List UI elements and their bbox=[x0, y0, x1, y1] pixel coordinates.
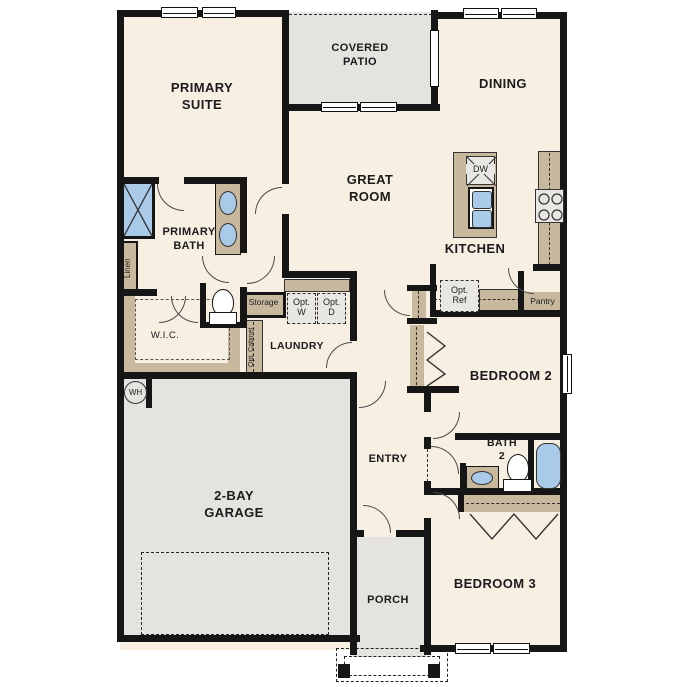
bath2-label: BATH 2 bbox=[478, 437, 526, 464]
wall-segment bbox=[117, 635, 360, 642]
wall-segment bbox=[407, 318, 437, 324]
bedroom3-closet-dash bbox=[466, 503, 560, 504]
kitchen-label: KITCHEN bbox=[430, 241, 520, 258]
porch-label: PORCH bbox=[358, 593, 418, 607]
window bbox=[562, 354, 572, 394]
garage-door-outline bbox=[141, 552, 329, 635]
bathtub-fixture bbox=[536, 443, 561, 489]
primary-bath-label: PRIMARY BATH bbox=[145, 225, 233, 253]
wic-label: W.I.C. bbox=[140, 330, 190, 342]
porch-step-corner bbox=[428, 664, 440, 678]
laundry-label: LAUNDRY bbox=[264, 340, 330, 353]
bedroom3-label: BEDROOM 3 bbox=[445, 576, 545, 593]
wall-segment bbox=[533, 264, 567, 271]
water-heater-label: WH bbox=[124, 388, 147, 397]
opt-dryer-label: Opt. D bbox=[317, 297, 346, 318]
wall-segment bbox=[460, 463, 466, 493]
wall-segment bbox=[117, 10, 124, 642]
coat-closet-dash bbox=[418, 291, 419, 318]
wall-segment bbox=[350, 530, 364, 537]
opt-ref-label: Opt. Ref bbox=[440, 285, 479, 306]
window bbox=[493, 643, 530, 654]
wall-segment bbox=[431, 10, 438, 32]
primary-suite-label: PRIMARY SUITE bbox=[152, 80, 252, 113]
porch-steps-inner bbox=[344, 656, 440, 676]
floor-plan: DW WH PRIMARY SUITE COVE bbox=[0, 0, 687, 687]
covered-patio-label: COVERED PATIO bbox=[312, 41, 408, 69]
sink-fixture bbox=[471, 471, 493, 485]
wall-segment bbox=[424, 392, 431, 412]
wall-segment bbox=[282, 271, 357, 278]
bedroom2-closet-shelf bbox=[410, 325, 424, 387]
pantry-label: Pantry bbox=[524, 297, 561, 307]
laundry-counter bbox=[284, 279, 350, 292]
wall-segment bbox=[458, 495, 464, 512]
storage-label: Storage bbox=[243, 298, 284, 308]
entry-cased-opening bbox=[427, 449, 428, 482]
wall-segment bbox=[117, 372, 357, 379]
wall-segment bbox=[282, 214, 289, 278]
wall-segment bbox=[431, 86, 438, 111]
bedroom2-label: BEDROOM 2 bbox=[461, 368, 561, 385]
kitchen-sink-fixture bbox=[468, 187, 494, 229]
wall-segment bbox=[350, 372, 357, 655]
stove-fixture bbox=[535, 189, 564, 223]
window bbox=[463, 8, 499, 19]
wall-segment bbox=[282, 10, 289, 111]
wall-segment bbox=[424, 437, 431, 449]
wall-segment bbox=[240, 177, 247, 253]
bedroom2-closet-bifold-doors bbox=[425, 330, 449, 388]
wall-segment bbox=[407, 285, 437, 291]
porch-step-corner bbox=[338, 664, 350, 678]
toilet-fixture bbox=[209, 289, 236, 326]
linen-label: Linen bbox=[123, 245, 136, 291]
window bbox=[455, 643, 491, 654]
bedroom3-closet-doors bbox=[468, 512, 562, 542]
patio-open-edge bbox=[289, 14, 432, 15]
coat-closet-shelf bbox=[412, 290, 426, 319]
dining-label: DINING bbox=[458, 76, 548, 93]
ref-counter bbox=[479, 289, 521, 311]
bedroom2-closet-dash bbox=[416, 327, 417, 385]
sliding-door-panel bbox=[321, 102, 358, 112]
wall-segment bbox=[350, 271, 357, 341]
opt-washer-label: Opt. W bbox=[287, 297, 316, 318]
wall-segment bbox=[424, 518, 431, 655]
opt-cabinet-label: Opt. Cabinet bbox=[248, 321, 261, 373]
patio-door bbox=[430, 30, 439, 87]
wall-segment bbox=[184, 177, 247, 184]
great-room-label: GREAT ROOM bbox=[322, 172, 418, 205]
window bbox=[501, 8, 537, 19]
window bbox=[202, 7, 236, 18]
wall-segment bbox=[282, 104, 289, 184]
sliding-door-panel bbox=[360, 102, 397, 112]
entry-label: ENTRY bbox=[358, 452, 418, 466]
wall-segment bbox=[433, 12, 567, 19]
garage-label: 2-BAY GARAGE bbox=[184, 488, 284, 521]
window bbox=[161, 7, 198, 18]
wall-segment bbox=[560, 12, 567, 652]
sink-fixture bbox=[219, 191, 237, 215]
dishwasher-label: DW bbox=[466, 164, 495, 174]
wall-segment bbox=[424, 488, 567, 495]
